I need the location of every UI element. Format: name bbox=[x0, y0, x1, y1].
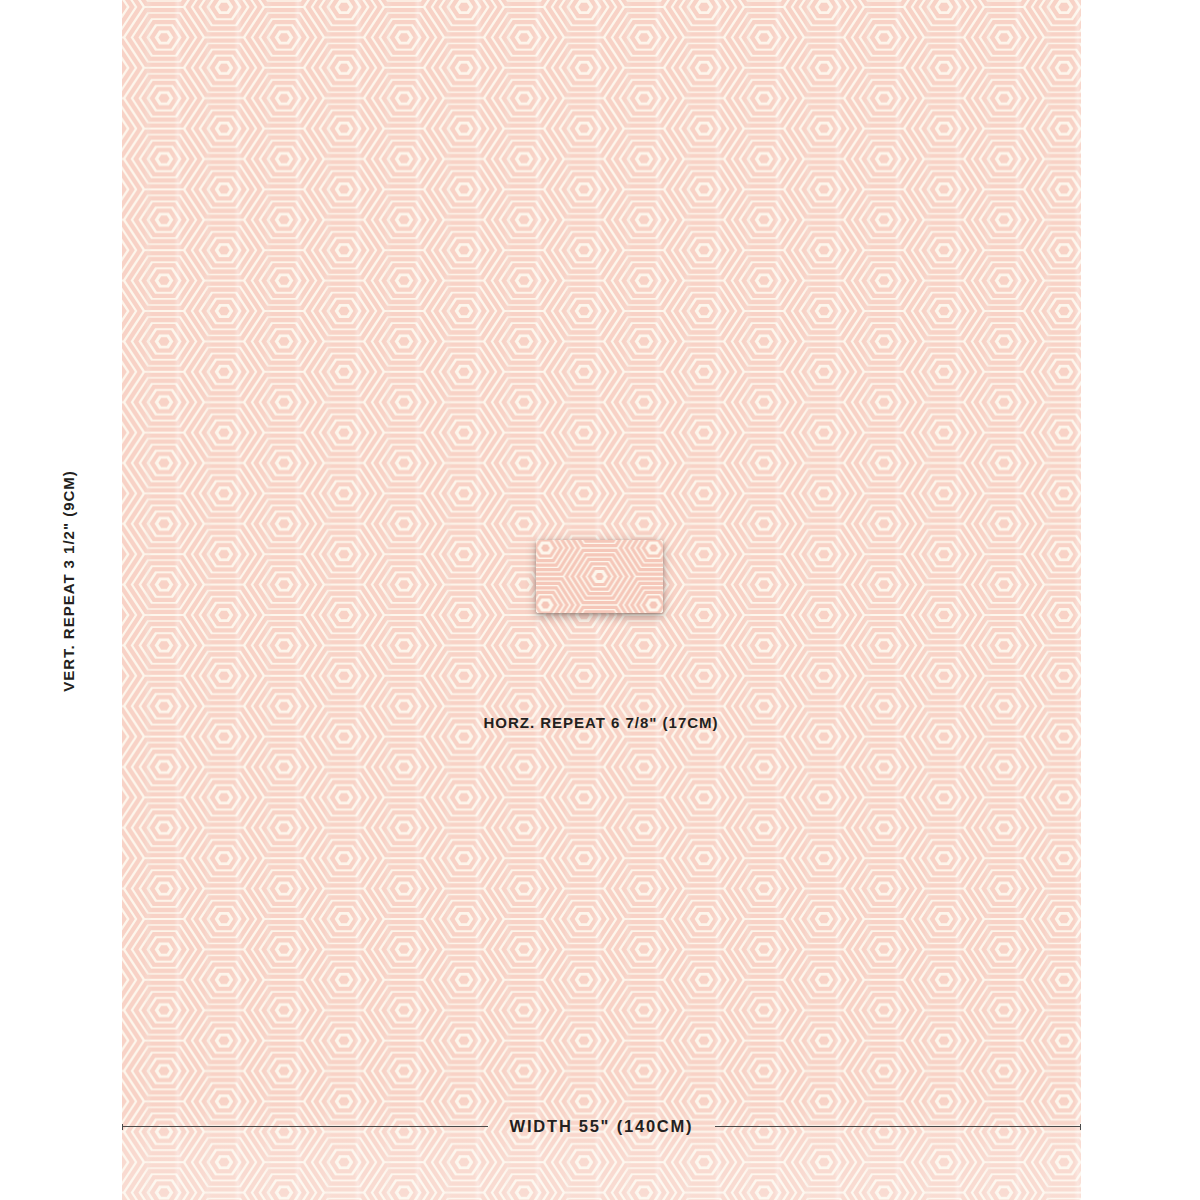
vertical-repeat-label: VERT. REPEAT 3 1/2" (9CM) bbox=[60, 470, 77, 692]
page: { "annotations": { "vertical_repeat": { … bbox=[0, 0, 1200, 1200]
vertical-repeat-value: 3 1/2" (9CM) bbox=[60, 470, 77, 568]
width-rule-left-tick bbox=[122, 1124, 123, 1130]
detail-swatch-svg bbox=[536, 540, 663, 613]
width-label-text: WIDTH bbox=[510, 1117, 573, 1136]
horizontal-repeat-label: HORZ. REPEAT 6 7/8" (17CM) bbox=[483, 714, 718, 731]
width-label: WIDTH 55" (140CM) bbox=[488, 1117, 716, 1136]
width-rule-right bbox=[715, 1126, 1081, 1127]
detail-swatch bbox=[536, 540, 663, 613]
horizontal-repeat-value: 6 7/8" (17CM) bbox=[611, 714, 719, 731]
width-rule-right-tick bbox=[1080, 1124, 1081, 1130]
width-value: 55" (140CM) bbox=[579, 1117, 694, 1136]
width-annotation: WIDTH 55" (140CM) bbox=[122, 1117, 1081, 1136]
horizontal-repeat-label-text: HORZ. REPEAT bbox=[483, 714, 606, 731]
width-rule-left bbox=[122, 1126, 488, 1127]
vertical-repeat-label-text: VERT. REPEAT bbox=[60, 573, 77, 691]
